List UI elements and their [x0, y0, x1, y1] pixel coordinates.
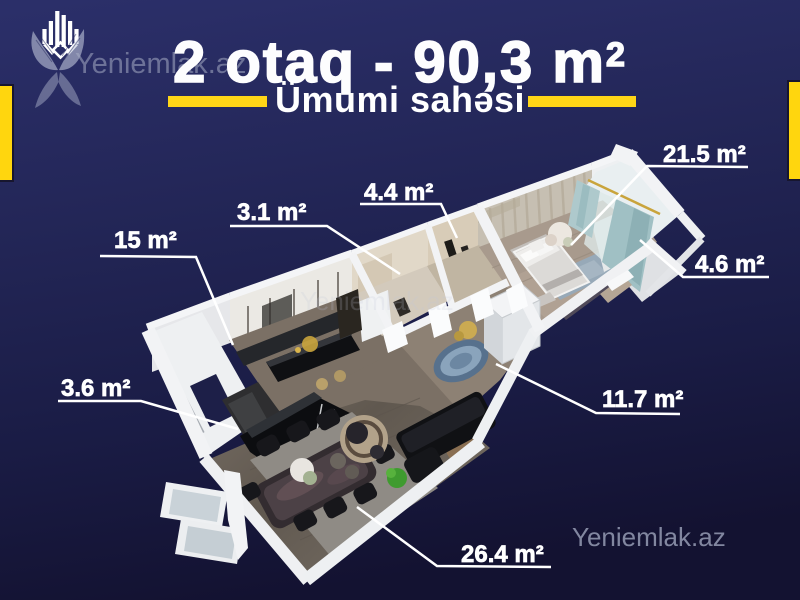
- svg-text:21.5 m²: 21.5 m²: [663, 141, 746, 168]
- svg-text:4.6 m²: 4.6 m²: [695, 251, 764, 278]
- svg-text:4.4 m²: 4.4 m²: [364, 179, 433, 206]
- svg-text:Yeniemlak.az: Yeniemlak.az: [572, 522, 726, 552]
- svg-text:11.7 m²: 11.7 m²: [602, 386, 683, 413]
- svg-text:Yeniemlak.az: Yeniemlak.az: [300, 286, 454, 316]
- svg-text:Ümumi sahəsi: Ümumi sahəsi: [275, 79, 525, 120]
- svg-text:15 m²: 15 m²: [114, 227, 177, 254]
- svg-text:3.6 m²: 3.6 m²: [61, 375, 130, 402]
- svg-text:26.4 m²: 26.4 m²: [461, 541, 544, 568]
- svg-text:3.1 m²: 3.1 m²: [237, 199, 306, 226]
